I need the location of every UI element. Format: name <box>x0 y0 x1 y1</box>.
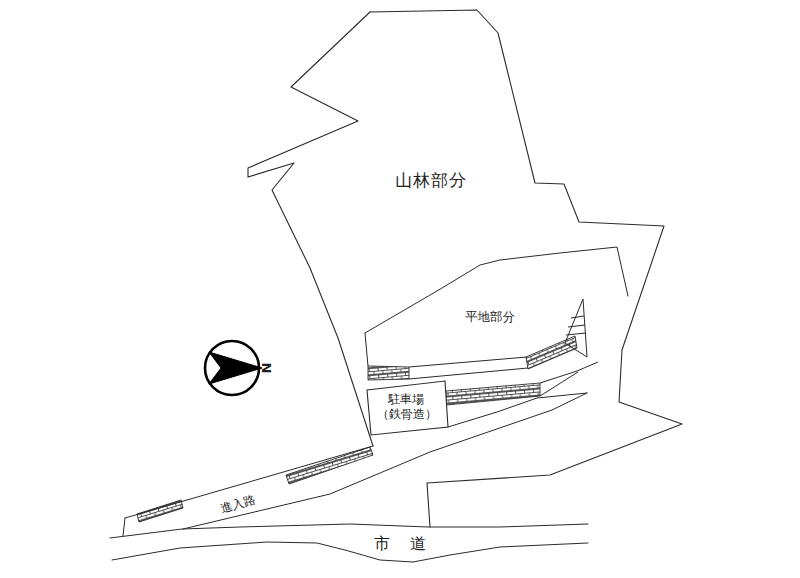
wall-upper-double-line <box>409 357 528 379</box>
forest-area-label: 山林部分 <box>395 170 467 190</box>
flat-area-label: 平地部分 <box>465 309 515 324</box>
site-plan: 駐車場 （鉄骨造） N 山林部分 平地部分 進入路 市 道 <box>0 0 800 578</box>
approach-hatch-strip-1 <box>137 500 183 522</box>
flat-area-left-stub <box>365 333 368 366</box>
north-arrow-dart-icon <box>209 352 262 384</box>
wall-upper-hatch-left <box>368 366 409 380</box>
approach-road-left-cap <box>123 518 125 536</box>
parking-name-label: 駐車場 <box>388 392 424 406</box>
parking-building-box: 駐車場 （鉄骨造） <box>367 381 448 435</box>
approach-road-label: 進入路 <box>219 492 257 515</box>
parcel-outline-right <box>370 10 682 527</box>
wall-lower-converging-lines <box>540 362 598 396</box>
wall-upper-hatch-right <box>526 336 577 369</box>
site-plan-svg: 駐車場 （鉄骨造） N 山林部分 平地部分 進入路 市 道 <box>0 0 800 578</box>
parking-structure-label: （鉄骨造） <box>377 407 437 421</box>
parcel-outline-left <box>248 12 373 446</box>
city-road-label: 市 道 <box>374 534 428 553</box>
north-letter: N <box>259 363 274 374</box>
approach-road <box>123 393 587 536</box>
forest-parcel-boundary <box>248 10 682 527</box>
city-road <box>110 524 588 562</box>
city-road-lower-line <box>112 542 588 562</box>
north-arrow: N <box>205 341 274 395</box>
flat-area-boundary <box>365 247 628 366</box>
city-road-upper-line <box>110 524 588 538</box>
approach-hatch-strip-2 <box>286 447 373 484</box>
